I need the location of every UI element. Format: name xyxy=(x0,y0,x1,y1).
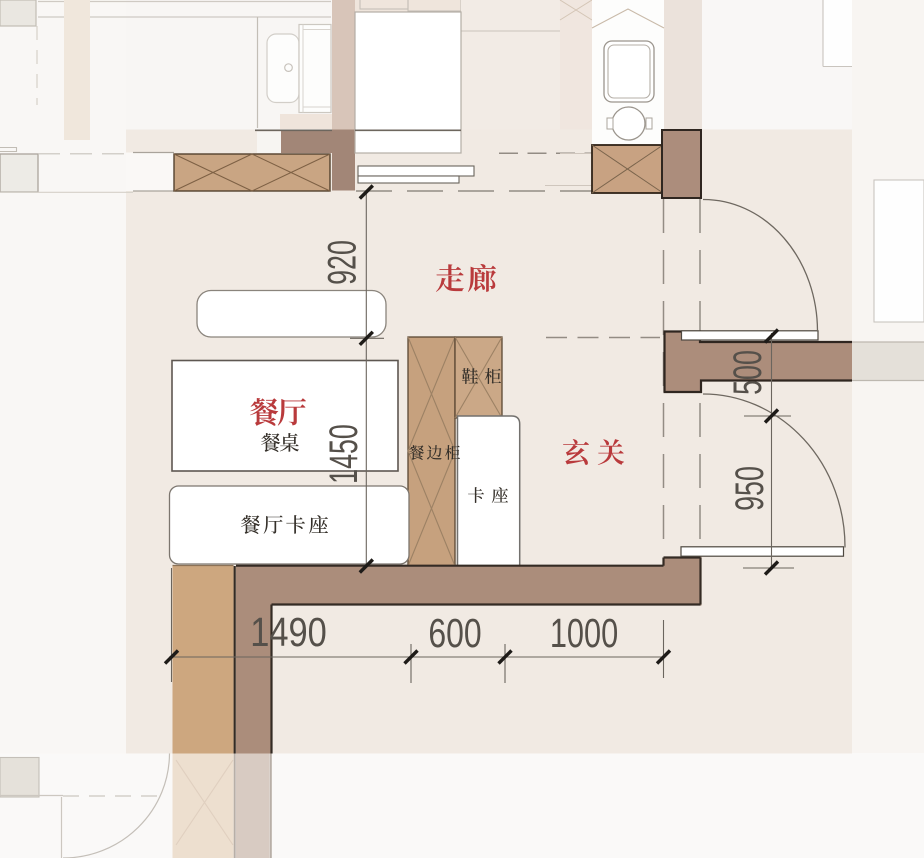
svg-text:600: 600 xyxy=(428,610,481,656)
svg-text:500: 500 xyxy=(726,350,770,395)
svg-text:920: 920 xyxy=(320,240,364,285)
svg-text:1450: 1450 xyxy=(322,424,366,484)
svg-text:1490: 1490 xyxy=(250,610,327,655)
svg-text:950: 950 xyxy=(728,466,772,511)
svg-text:1000: 1000 xyxy=(550,610,618,656)
